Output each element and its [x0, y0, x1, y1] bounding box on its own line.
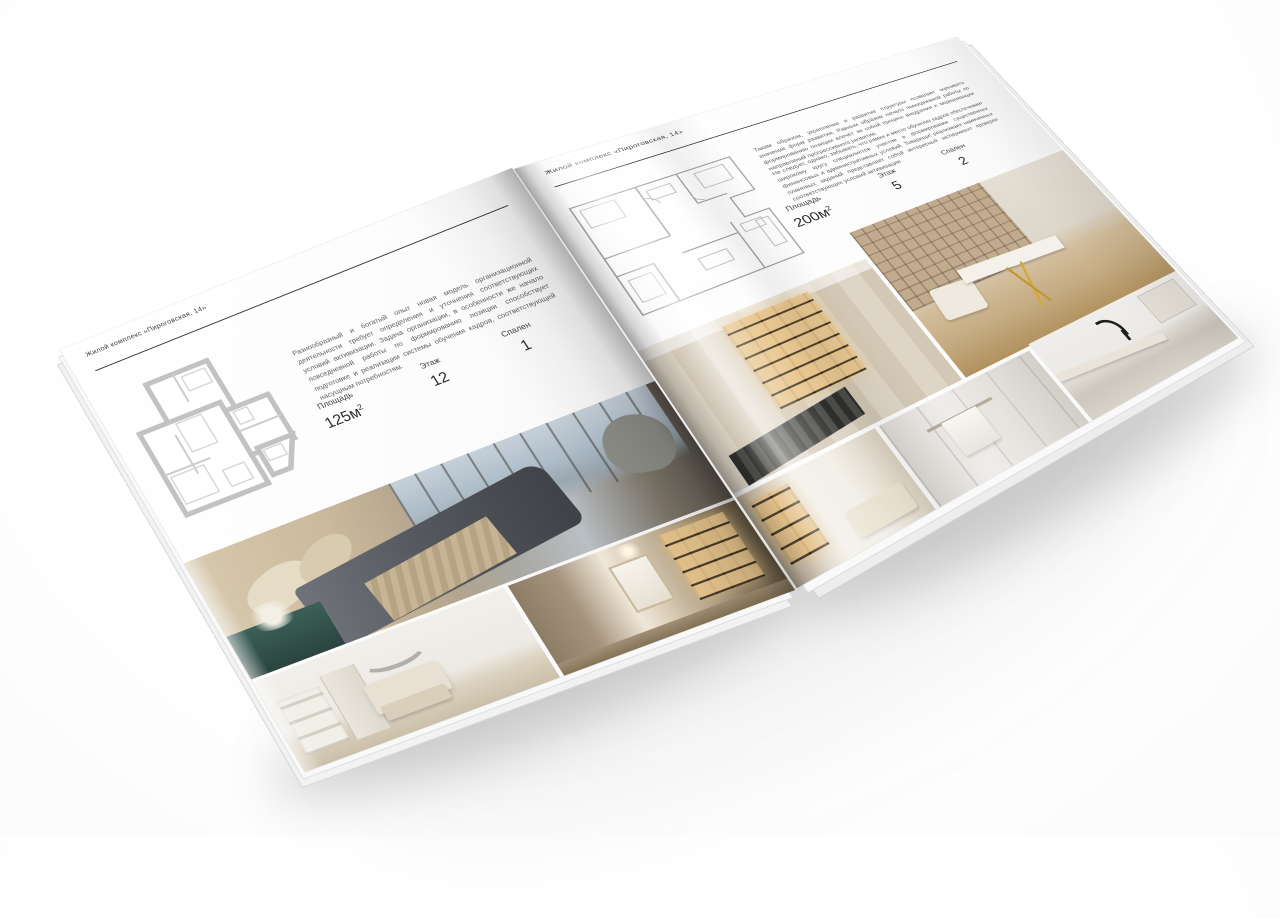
brochure-scene: Жилой комплекс «Пироговская, 14» Разнооб… [0, 0, 1280, 835]
stat-area-value: 125м2 [303, 395, 387, 439]
black-faucet-shape [1095, 314, 1129, 342]
towel-shape [941, 406, 1000, 456]
lit-bookshelf-shape [658, 512, 765, 601]
mirror-shape [1136, 278, 1197, 324]
